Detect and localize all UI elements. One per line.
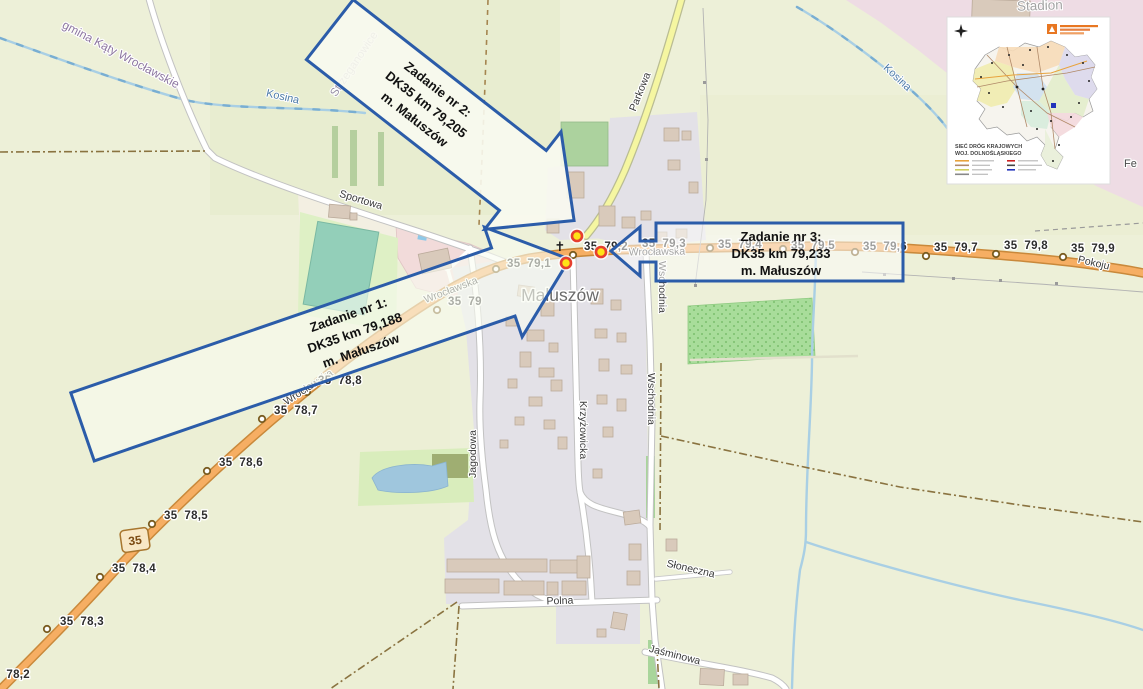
street-krzyzowicka: Krzyżowicka xyxy=(577,401,589,460)
callout-3-km: DK35 km 79,233 xyxy=(731,246,830,261)
task-marker-3 xyxy=(596,247,606,257)
map-annotation-figure: gmina Kąty Wrocławskie Strzeganowice Kos… xyxy=(0,0,1143,689)
edge-cut-label: Fe xyxy=(1124,158,1137,170)
stadium-label: Stadion xyxy=(1017,0,1063,14)
callout-zadanie-3: Zadanie nr 3: DK35 km 79,233 m. Małuszów xyxy=(611,223,903,281)
route-shield-35: 35 xyxy=(120,527,151,553)
km-label: 35 79,9 xyxy=(1071,243,1115,255)
task-marker-1 xyxy=(561,258,571,268)
inset-title-line1: SIEĆ DRÓG KRAJOWYCH xyxy=(955,142,1022,150)
svg-text:35: 35 xyxy=(127,533,142,549)
km-label: 35 78,3 xyxy=(60,616,104,628)
inset-location-marker xyxy=(1051,103,1056,108)
orchard-area xyxy=(688,298,815,364)
km-label: 35 79,7 xyxy=(934,242,978,254)
callout-3-place: m. Małuszów xyxy=(741,263,822,278)
inset-title-line2: WOJ. DOLNOŚLĄSKIEGO xyxy=(955,150,1022,157)
street-jagodowa: Jagodowa xyxy=(467,430,479,478)
km-label: 35 78,5 xyxy=(164,510,208,522)
church-cross-symbol: ✝ xyxy=(555,239,566,254)
park-area xyxy=(561,122,608,166)
km-label: 35 78,6 xyxy=(219,457,263,469)
inset-overview-map[interactable]: SIEĆ DRÓG KRAJOWYCH WOJ. DOLNOŚLĄSKIEGO xyxy=(947,17,1110,184)
street-wschodnia-s: Wschodnia xyxy=(645,373,657,425)
km-label: 35 78,2 xyxy=(0,669,30,681)
km-label: 35 78,4 xyxy=(112,563,156,575)
km-label: 35 79,8 xyxy=(1004,240,1048,252)
task-marker-2 xyxy=(572,231,582,241)
street-polna: Polna xyxy=(546,595,573,608)
km-label: 35 78,7 xyxy=(274,405,318,417)
callout-3-title: Zadanie nr 3: xyxy=(741,229,822,244)
map-canvas[interactable]: gmina Kąty Wrocławskie Strzeganowice Kos… xyxy=(0,0,1143,689)
